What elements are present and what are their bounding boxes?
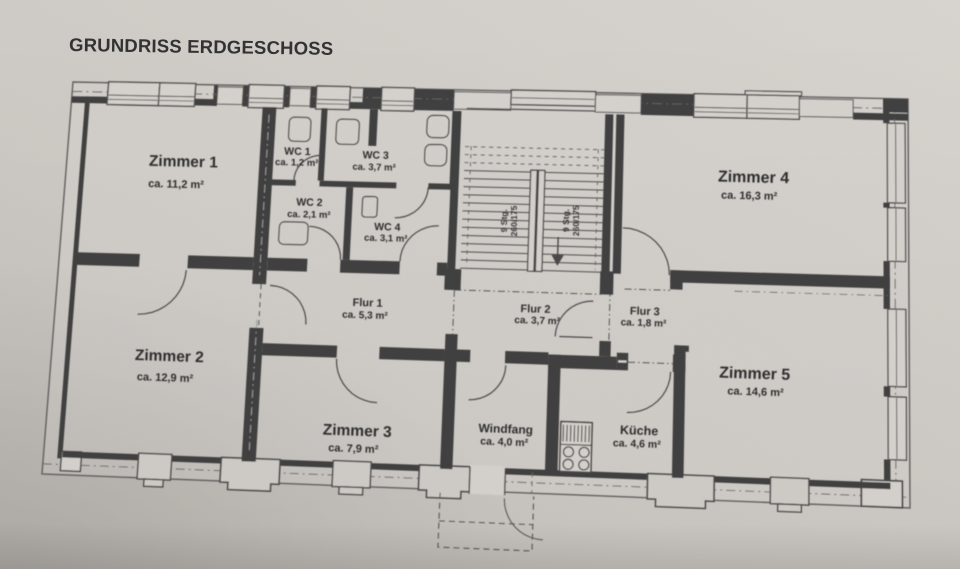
svg-text:Flur 1: Flur 1 xyxy=(352,297,382,310)
svg-text:Zimmer 4: Zimmer 4 xyxy=(718,169,790,188)
svg-text:9 Stg.: 9 Stg. xyxy=(499,209,509,232)
svg-text:ca. 1,2 m²: ca. 1,2 m² xyxy=(275,157,319,169)
svg-text:ca. 3,7 m²: ca. 3,7 m² xyxy=(514,315,561,327)
svg-text:Flur 2: Flur 2 xyxy=(520,303,550,316)
svg-text:WC 4: WC 4 xyxy=(374,221,401,234)
svg-text:Zimmer 5: Zimmer 5 xyxy=(719,365,791,384)
svg-text:ca. 2,1 m²: ca. 2,1 m² xyxy=(287,209,331,221)
svg-text:ca. 3,7 m²: ca. 3,7 m² xyxy=(352,162,396,174)
svg-text:ca. 4,6 m²: ca. 4,6 m² xyxy=(613,437,662,451)
svg-text:WC 1: WC 1 xyxy=(284,145,311,158)
svg-text:WC 3: WC 3 xyxy=(362,149,389,162)
svg-text:ca. 3,1 m²: ca. 3,1 m² xyxy=(364,233,408,245)
svg-text:ca. 1,8 m²: ca. 1,8 m² xyxy=(621,317,668,329)
svg-text:ca. 7,9 m²: ca. 7,9 m² xyxy=(328,442,379,456)
svg-text:ca. 12,9 m²: ca. 12,9 m² xyxy=(137,371,194,385)
svg-text:ca. 4,0 m²: ca. 4,0 m² xyxy=(480,435,529,449)
svg-text:GRUNDRISS ERDGESCHOSS: GRUNDRISS ERDGESCHOSS xyxy=(69,34,334,59)
svg-text:Küche: Küche xyxy=(620,423,659,438)
svg-text:260/175: 260/175 xyxy=(571,205,581,236)
svg-text:WC 2: WC 2 xyxy=(296,196,323,209)
svg-text:9 Stg.: 9 Stg. xyxy=(561,209,571,232)
svg-text:ca. 14,6 m²: ca. 14,6 m² xyxy=(727,385,784,399)
svg-text:ca. 11,2 m²: ca. 11,2 m² xyxy=(148,178,204,191)
svg-text:Windfang: Windfang xyxy=(478,421,533,437)
svg-text:Flur 3: Flur 3 xyxy=(630,305,660,318)
svg-text:Zimmer 2: Zimmer 2 xyxy=(135,347,204,366)
svg-text:ca. 16,3 m²: ca. 16,3 m² xyxy=(721,189,778,202)
svg-text:260/175: 260/175 xyxy=(509,205,519,236)
svg-text:Zimmer 1: Zimmer 1 xyxy=(149,153,219,172)
svg-text:Zimmer 3: Zimmer 3 xyxy=(323,422,393,442)
svg-text:ca. 5,3 m²: ca. 5,3 m² xyxy=(342,310,389,322)
